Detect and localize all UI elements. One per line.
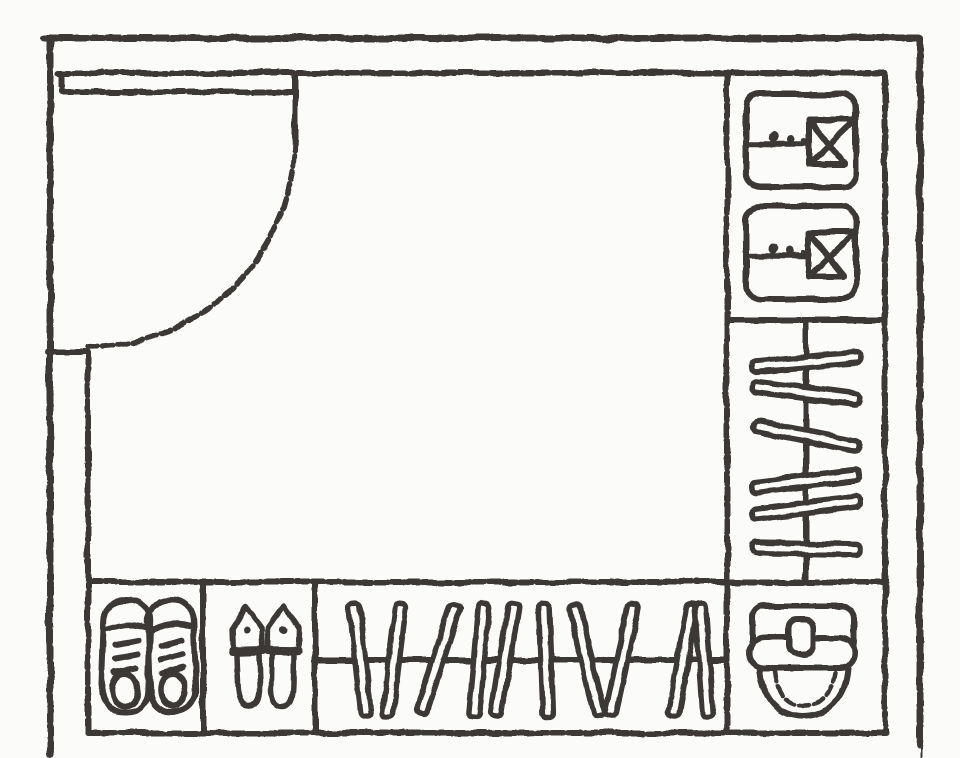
slipper-cubby <box>231 606 299 707</box>
shirt-button <box>786 135 794 143</box>
bag-cubby <box>749 606 855 716</box>
slipper-dot <box>280 626 287 633</box>
sneaker-cubby <box>101 599 197 713</box>
slipper-insole <box>237 654 261 707</box>
door-lintel <box>62 74 292 92</box>
floorplan-canvas <box>0 0 960 758</box>
floorplan-drawing <box>0 0 960 758</box>
shirt-button <box>768 244 778 254</box>
shirt-button <box>786 247 794 255</box>
shirt-collar <box>809 232 854 277</box>
slipper-symbol <box>231 606 264 707</box>
door-swing-arc <box>88 140 295 347</box>
slipper-dot <box>244 626 251 633</box>
slipper-insole <box>271 654 294 706</box>
entry-door <box>88 74 295 347</box>
shirt-button <box>768 132 778 142</box>
sneaker-heel <box>111 674 138 707</box>
sneaker-heel <box>160 674 187 707</box>
sneaker-symbol <box>147 599 197 713</box>
slipper-symbol <box>267 606 299 707</box>
sneaker-laces <box>160 640 183 674</box>
hanger-bar <box>539 603 554 717</box>
sneaker-symbol <box>101 599 151 713</box>
bottom-rail <box>318 603 725 718</box>
folded-shirt-symbol <box>746 94 856 187</box>
bag-brim-inner <box>775 671 835 705</box>
sneaker-toe-line <box>108 624 146 631</box>
sneaker-toe-line <box>152 624 190 631</box>
hanger-bar <box>752 543 860 556</box>
bag-symbol <box>749 606 855 716</box>
folded-shirt-symbol <box>746 206 856 299</box>
hanger-bar <box>349 603 372 718</box>
hanger-bar <box>752 352 861 372</box>
bag-buckle <box>789 620 813 654</box>
side-rail <box>752 324 861 580</box>
shirt-shelf <box>746 94 856 299</box>
hanger-bar <box>695 603 714 717</box>
sneaker-laces <box>114 640 137 674</box>
hanger-bar <box>469 603 490 718</box>
shirt-collar <box>809 120 854 165</box>
